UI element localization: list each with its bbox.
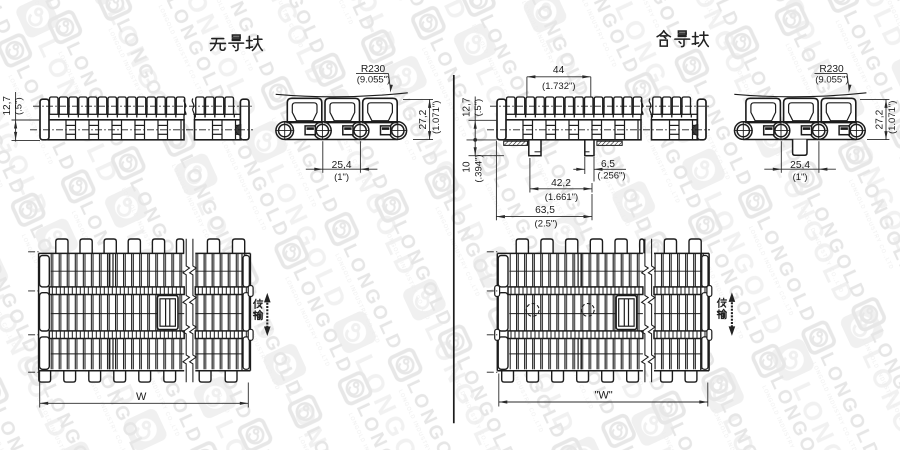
svg-text:(.256"): (.256") <box>597 171 625 182</box>
svg-text:63,5: 63,5 <box>535 205 555 216</box>
svg-text:42,2: 42,2 <box>551 178 571 189</box>
svg-text:27,2: 27,2 <box>418 109 429 129</box>
svg-text:6,5: 6,5 <box>601 159 615 170</box>
svg-text:(1.732"): (1.732") <box>542 81 575 92</box>
svg-text:"W": "W" <box>594 390 612 402</box>
svg-text:25,4: 25,4 <box>790 160 810 171</box>
svg-text:27,2: 27,2 <box>875 109 886 129</box>
svg-text:12,7: 12,7 <box>462 97 473 117</box>
svg-text:(9.055"): (9.055") <box>357 74 390 85</box>
svg-text:(1.071"): (1.071") <box>887 101 898 134</box>
svg-text:(.5"): (.5") <box>473 99 484 117</box>
svg-text:(.5"): (.5") <box>14 97 25 115</box>
svg-text:(1"): (1") <box>334 172 349 183</box>
svg-text:(1.071"): (1.071") <box>431 101 442 134</box>
svg-text:(1.661"): (1.661") <box>545 192 578 203</box>
svg-text:10: 10 <box>462 161 473 173</box>
svg-text:(1"): (1") <box>793 172 808 183</box>
svg-text:W: W <box>136 391 147 403</box>
svg-text:(2.5"): (2.5") <box>535 219 558 230</box>
svg-text:25,4: 25,4 <box>332 160 352 171</box>
svg-text:(9.055"): (9.055") <box>815 74 848 85</box>
svg-text:44: 44 <box>553 65 565 76</box>
svg-text:(.394"): (.394") <box>474 154 485 182</box>
svg-text:12,7: 12,7 <box>2 96 13 116</box>
